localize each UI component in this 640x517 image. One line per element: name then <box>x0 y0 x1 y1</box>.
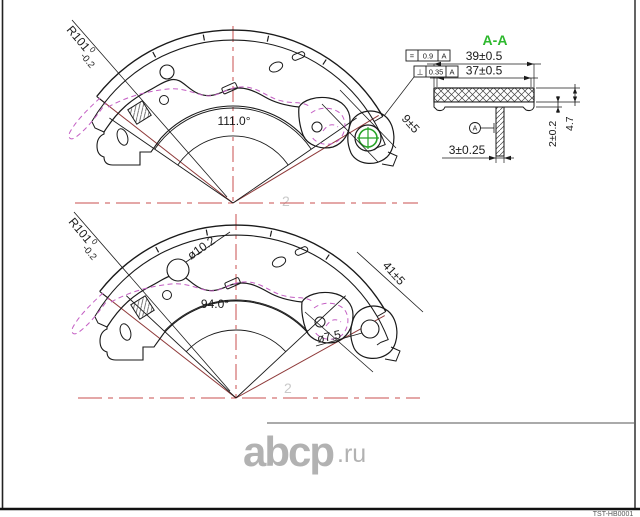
bottom-hole-small <box>361 320 379 338</box>
part-number: TST-HB0001 <box>593 511 634 517</box>
svg-text:9±5: 9±5 <box>399 112 423 136</box>
ghost-digit-bottom: 2 <box>284 380 292 396</box>
abcp-watermark: abcp .ru <box>243 428 366 475</box>
svg-text:⊥: ⊥ <box>417 68 424 77</box>
ghost-digit-top: 2 <box>282 193 290 209</box>
svg-text:A: A <box>441 52 446 61</box>
bottom-angle-label: 94.0° <box>201 297 229 311</box>
bottom-view: 94.0° ø10.2 ø7.5 R101 0 -0.2 41±5 <box>61 212 423 398</box>
bottom-radius-label: R101 0 -0.2 <box>61 214 106 262</box>
svg-text:A: A <box>449 68 454 77</box>
svg-text:0.9: 0.9 <box>423 52 433 61</box>
svg-text:-0.2: -0.2 <box>78 51 97 71</box>
svg-text:37±0.5: 37±0.5 <box>466 64 503 78</box>
section-dim-right: 2±0.2 4.7 <box>536 84 580 147</box>
bottom-hole-small-dim: ø7.5 <box>316 327 362 346</box>
tolerance-leader <box>384 77 414 116</box>
top-radius-label: R101 0 -0.2 <box>59 22 104 70</box>
rim-cross-section <box>434 102 534 111</box>
top-view: 111.0° R101 0 -0.2 9±5 <box>59 20 423 203</box>
top-angle-label: 111.0° <box>217 114 250 128</box>
bottom-end-width-dim: 41±5 <box>305 252 423 372</box>
top-web-hole <box>160 65 174 79</box>
bottom-hole-large <box>167 259 189 281</box>
lining-cross-section <box>434 88 534 102</box>
drawing-canvas: 2 2 abcp .ru 111.0° R10 <box>0 0 640 517</box>
section-title: A-A <box>483 32 508 48</box>
svg-text:A: A <box>473 126 478 133</box>
svg-text:41±5: 41±5 <box>380 259 408 288</box>
section-view: A-A 39±0.5 37±0.5 = 0.9 A <box>384 32 580 163</box>
plate-thickness-label: 2±0.2 <box>547 121 559 147</box>
bottom-hole-large-dim: ø10.2 <box>185 232 230 262</box>
datum-symbol: A <box>470 123 495 134</box>
svg-text:=: = <box>410 52 415 61</box>
svg-text:-0.2: -0.2 <box>80 243 99 263</box>
technical-drawing: 2 2 abcp .ru 111.0° R10 <box>0 0 640 517</box>
svg-text:ø7.5: ø7.5 <box>316 327 343 346</box>
web-cross-section <box>496 107 504 156</box>
tolerance-frame-parallel: = 0.9 A <box>406 50 450 61</box>
svg-text:39±0.5: 39±0.5 <box>466 49 503 63</box>
svg-text:0.35: 0.35 <box>429 68 444 77</box>
lining-depth-label: 4.7 <box>564 116 576 131</box>
abcp-tld-text: .ru <box>337 440 366 468</box>
abcp-logo-text: abcp <box>243 428 333 475</box>
svg-text:3±0.25: 3±0.25 <box>449 143 486 157</box>
svg-text:ø10.2: ø10.2 <box>185 233 218 262</box>
